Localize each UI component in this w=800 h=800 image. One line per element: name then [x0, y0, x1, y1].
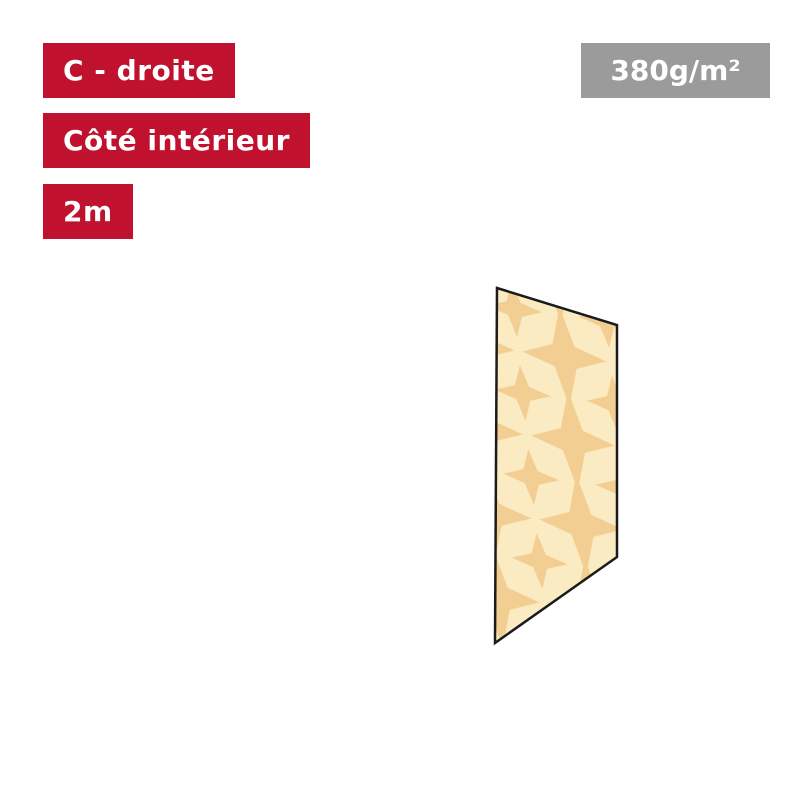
product-preview-canvas: C - droite Côté intérieur 2m 380g/m²: [0, 0, 800, 800]
panel-preview-image: [0, 0, 800, 800]
panel-shape: [495, 288, 617, 643]
